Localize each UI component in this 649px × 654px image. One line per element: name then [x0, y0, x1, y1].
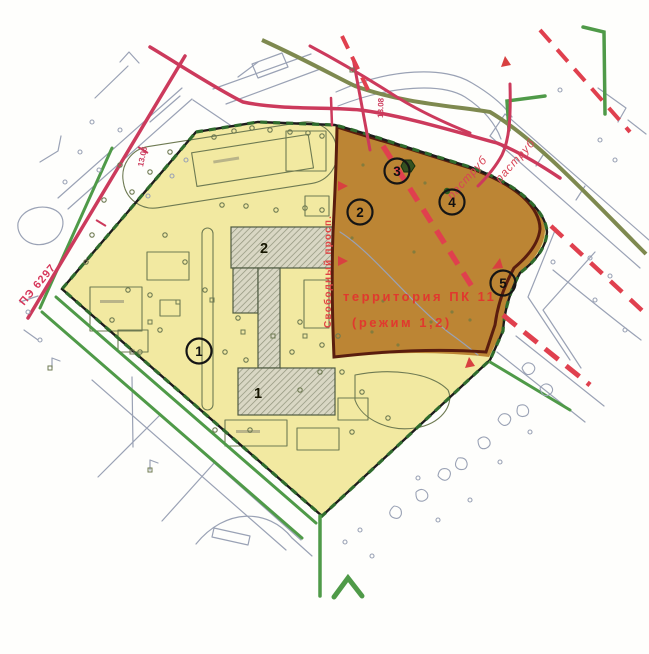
territory-label-line2: (режим 1,2) — [352, 315, 452, 330]
marker-3-number: 3 — [393, 164, 401, 179]
map-symbol — [414, 488, 429, 503]
map-symbol — [358, 528, 362, 532]
map-symbol — [387, 504, 403, 521]
map-symbol — [90, 233, 94, 237]
map-symbol — [412, 250, 415, 253]
map-symbol — [350, 236, 353, 239]
map-symbol — [608, 274, 612, 278]
street-name-label: Свободный просп. — [322, 215, 334, 328]
map-symbol — [416, 476, 420, 480]
map-symbol — [528, 430, 532, 434]
map-symbol — [551, 260, 555, 264]
map-symbol — [370, 330, 373, 333]
map-symbol — [468, 498, 472, 502]
map-symbol — [90, 120, 94, 124]
map-symbol — [343, 540, 347, 544]
scanned-plan-map: территория ПК 11 (режим 1,2) Свободный п… — [0, 0, 649, 654]
map-symbol — [118, 128, 122, 132]
map-symbol — [26, 310, 30, 314]
map-symbol — [63, 180, 67, 184]
territory-label-line1: территория ПК 11 — [343, 289, 496, 304]
map-symbol — [623, 328, 627, 332]
building-number-1: 1 — [254, 386, 262, 402]
red-triangle-marker — [501, 56, 511, 67]
map-symbol — [558, 88, 562, 92]
marker-5-number: 5 — [499, 276, 507, 291]
map-symbol — [423, 181, 426, 184]
map-symbol — [450, 310, 453, 313]
map-symbol — [613, 158, 617, 162]
map-symbol — [477, 436, 491, 450]
map-symbol — [78, 150, 82, 154]
elevation-label-n: 13.08 — [376, 97, 386, 118]
map-symbol — [102, 198, 106, 202]
map-symbol — [361, 163, 364, 166]
map-symbol — [370, 554, 374, 558]
marker-1-number: 1 — [195, 344, 203, 359]
map-symbol — [453, 455, 470, 472]
map-symbol — [514, 402, 531, 418]
map-symbol — [436, 466, 453, 482]
map-symbol — [498, 460, 502, 464]
map-symbol — [540, 384, 553, 396]
map-symbol — [213, 428, 217, 432]
marker-4-number: 4 — [448, 195, 456, 210]
map-symbol — [598, 138, 602, 142]
map-symbol — [130, 190, 134, 194]
map-symbol — [97, 168, 101, 172]
map-symbol — [468, 318, 471, 321]
building-number-2: 2 — [260, 241, 268, 257]
map-symbol — [436, 518, 440, 522]
map-symbol — [396, 343, 399, 346]
map-symbol — [497, 412, 513, 427]
marker-2-number: 2 — [356, 205, 364, 220]
map-symbol — [168, 150, 172, 154]
map-canvas: территория ПК 11 (режим 1,2) Свободный п… — [0, 0, 649, 654]
map-symbol — [593, 298, 597, 302]
map-symbol — [148, 170, 152, 174]
elevation-label-nw: 13.06 — [136, 145, 149, 167]
